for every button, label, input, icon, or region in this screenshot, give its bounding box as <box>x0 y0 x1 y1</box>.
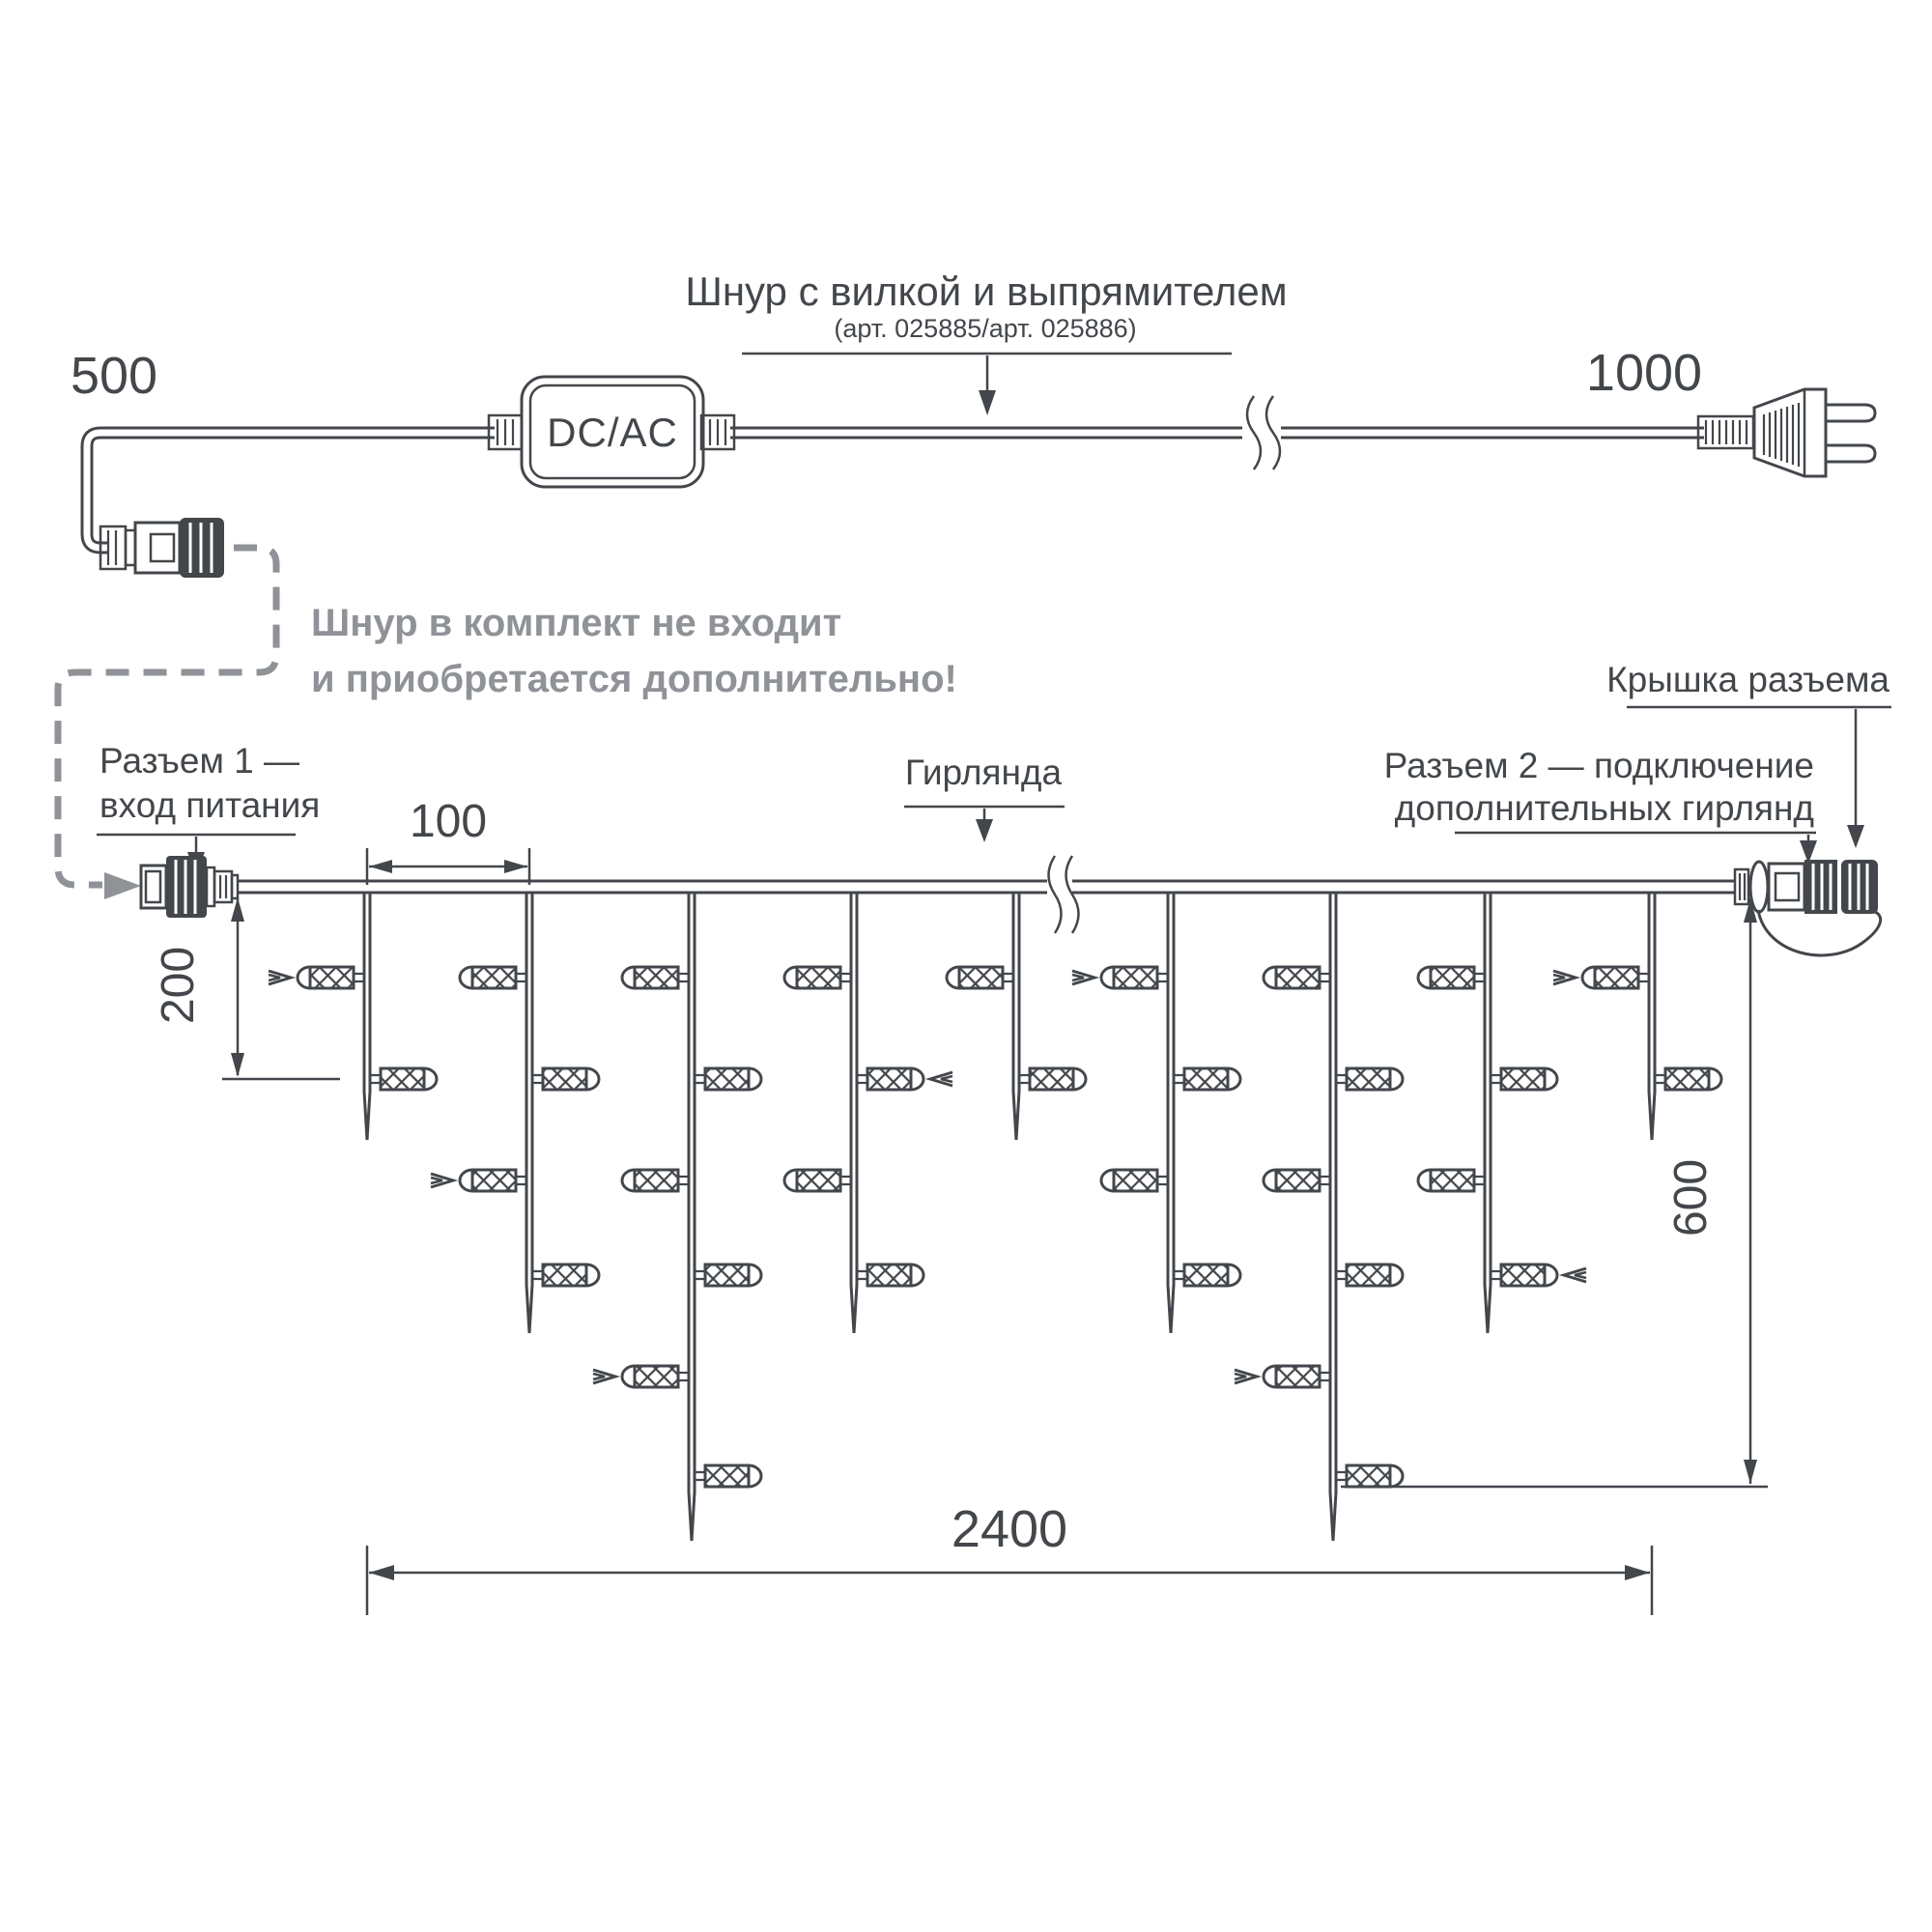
bulb-lattice <box>1501 1068 1545 1090</box>
connector-socket-detail <box>1776 873 1799 900</box>
connector-gland <box>1735 869 1748 904</box>
cord-left-run-core <box>87 433 495 548</box>
icicle-drop-4 <box>784 893 923 1333</box>
drop-wire <box>1168 893 1174 1333</box>
led-bulb <box>1174 1068 1240 1090</box>
led-bulb <box>1491 1264 1557 1286</box>
icicle-drop-9 <box>1582 893 1721 1140</box>
arrowhead <box>976 819 993 842</box>
cord-break-symbol <box>1242 396 1281 469</box>
bulb-lattice <box>867 1068 911 1090</box>
dimension-100: 100 <box>367 796 529 885</box>
bulb-lattice <box>381 1068 424 1090</box>
garland-assembly: Разъем 1 — вход питания Гирлянда Разъем … <box>97 660 1891 1615</box>
cap-label: Крышка разъема <box>1606 660 1889 699</box>
bulb-stem <box>1320 974 1330 981</box>
bulb-lattice <box>1114 967 1157 988</box>
connector2-label-line2: дополнительных гирлянд <box>1395 788 1814 828</box>
drop-wire <box>1330 893 1336 1541</box>
bulb-stem <box>1320 1177 1330 1184</box>
detail-lines <box>497 419 513 445</box>
light-direction-arrow <box>930 1072 952 1086</box>
led-bulb <box>857 1264 923 1286</box>
bulb-stem <box>678 974 689 981</box>
bulb-lattice <box>1276 967 1320 988</box>
bulb-lattice <box>1501 1264 1545 1286</box>
converter-label: DC/AC <box>547 410 678 455</box>
icicle-drop-6 <box>1101 893 1240 1333</box>
led-bulb <box>1491 1068 1557 1090</box>
bulb-lattice <box>705 1465 749 1487</box>
bulb-lattice <box>797 967 840 988</box>
bulb-lattice <box>472 967 516 988</box>
cord-title: Шнур с вилкой и выпрямителем <box>685 269 1287 314</box>
bulb-lattice <box>543 1068 586 1090</box>
connector2-callout: Разъем 2 — подключение дополнительных ги… <box>1384 746 1817 864</box>
icicle-drop-3 <box>622 893 761 1541</box>
led-bulb <box>1418 1170 1485 1191</box>
bulb-stem <box>1003 974 1013 981</box>
arrowhead <box>231 1053 244 1077</box>
dim-2400-label: 2400 <box>952 1500 1067 1558</box>
power-plug <box>1698 389 1875 476</box>
led-bulb <box>370 1068 437 1090</box>
bulb-stem <box>1157 974 1168 981</box>
dimension-2400: 2400 <box>367 1500 1652 1615</box>
drop-wire <box>851 893 857 1333</box>
led-bulb <box>1264 967 1330 988</box>
bulb-stem <box>1157 1177 1168 1184</box>
garland-callout: Гирлянда <box>904 753 1065 842</box>
bulb-lattice <box>1431 1170 1474 1191</box>
light-direction-arrow <box>1072 971 1094 984</box>
dim-600-label: 600 <box>1665 1159 1717 1236</box>
led-bulb <box>857 1068 923 1090</box>
led-bulb <box>1101 1170 1168 1191</box>
bulb-lattice <box>1276 1366 1320 1387</box>
bulb-stem <box>532 1075 543 1083</box>
icicle-drop-5 <box>947 893 1086 1140</box>
bulb-lattice <box>705 1264 749 1286</box>
led-bulb <box>1101 967 1168 988</box>
connector-socket-detail <box>151 534 174 561</box>
connector-2-extension <box>1735 860 1881 955</box>
led-bulb <box>298 967 364 988</box>
bulb-stem <box>857 1075 867 1083</box>
detail-lines <box>1764 403 1799 467</box>
connector1-label-line2: вход питания <box>99 785 320 825</box>
light-direction-arrow <box>593 1370 615 1383</box>
drop-wire <box>689 893 695 1541</box>
diagram-canvas: Шнур с вилкой и выпрямителем (арт. 02588… <box>0 0 1932 1932</box>
cord-output-connector <box>100 518 224 578</box>
bulb-stem <box>532 1271 543 1279</box>
garland-main-wire <box>238 881 1735 893</box>
connector2-label-line1: Разъем 2 — подключение <box>1384 746 1814 785</box>
bulb-lattice <box>1665 1068 1709 1090</box>
bulb-lattice <box>1276 1170 1320 1191</box>
light-direction-arrow <box>1564 1268 1586 1282</box>
bulb-lattice <box>1347 1264 1390 1286</box>
led-bulb <box>1655 1068 1721 1090</box>
led-bulb <box>1336 1068 1403 1090</box>
bulb-stem <box>1474 974 1485 981</box>
led-bulb <box>532 1068 599 1090</box>
led-bulb <box>695 1264 761 1286</box>
dim-100-label: 100 <box>410 796 487 847</box>
led-bulb <box>1174 1264 1240 1286</box>
arrowhead <box>369 1565 394 1580</box>
icicle-drop-2 <box>460 893 599 1333</box>
detail-lines <box>1740 873 1745 900</box>
led-bulb <box>1582 967 1649 988</box>
bulb-lattice <box>797 1170 840 1191</box>
bulb-stem <box>1655 1075 1665 1083</box>
bulb-lattice <box>1347 1465 1390 1487</box>
plug-prong-bottom <box>1826 445 1875 462</box>
garland-drops <box>269 893 1721 1541</box>
dimension-600: 600 <box>1341 898 1768 1487</box>
arrowhead <box>1847 825 1864 848</box>
led-bulb <box>947 967 1013 988</box>
bulb-lattice <box>472 1170 516 1191</box>
bulb-lattice <box>635 967 678 988</box>
led-bulb <box>784 967 851 988</box>
bulb-stem <box>695 1271 705 1279</box>
led-bulb <box>695 1068 761 1090</box>
led-bulb <box>1418 967 1485 988</box>
light-direction-arrow <box>1553 971 1576 984</box>
note-line-1: Шнур в комплект не входит <box>311 602 841 644</box>
wire-break-symbol <box>1047 856 1079 933</box>
led-bulb <box>1336 1465 1403 1487</box>
led-bulb <box>622 1366 689 1387</box>
bulb-stem <box>678 1373 689 1380</box>
light-direction-arrow <box>1235 1370 1257 1383</box>
bulb-stem <box>1474 1177 1485 1184</box>
garland-label: Гирлянда <box>905 753 1063 792</box>
bulb-stem <box>1320 1373 1330 1380</box>
bulb-stem <box>695 1075 705 1083</box>
cord-subtitle: (арт. 025885/арт. 025886) <box>834 314 1136 343</box>
bulb-lattice <box>1184 1264 1228 1286</box>
light-direction-arrow <box>269 971 291 984</box>
connector-gland <box>214 871 232 902</box>
connector1-callout: Разъем 1 — вход питания <box>97 741 320 875</box>
led-bulb <box>532 1264 599 1286</box>
bulb-stem <box>516 974 526 981</box>
led-bulb <box>1336 1264 1403 1286</box>
bulb-stem <box>370 1075 381 1083</box>
bulb-lattice <box>635 1366 678 1387</box>
led-bulb <box>1019 1068 1086 1090</box>
led-bulb <box>622 1170 689 1191</box>
icicle-drop-1 <box>298 893 437 1140</box>
connector-collar <box>232 875 238 898</box>
note-line-2: и приобретается дополнительно! <box>311 658 957 700</box>
bulb-stem <box>695 1472 705 1480</box>
dc-ac-converter: DC/AC <box>489 377 734 487</box>
dim-200-label: 200 <box>153 947 204 1024</box>
bulb-lattice <box>1184 1068 1228 1090</box>
bulb-stem <box>354 974 364 981</box>
dim-1000-label: 1000 <box>1586 344 1702 402</box>
connector-socket-detail <box>146 871 160 902</box>
bulb-lattice <box>867 1264 911 1286</box>
bulb-stem <box>1491 1075 1501 1083</box>
bulb-stem <box>516 1177 526 1184</box>
drop-wire <box>526 893 532 1333</box>
tether-ring <box>1750 862 1768 912</box>
led-bulb <box>695 1465 761 1487</box>
bulb-lattice <box>1431 967 1474 988</box>
bulb-lattice <box>959 967 1003 988</box>
light-direction-arrow <box>431 1174 453 1187</box>
bulb-stem <box>840 974 851 981</box>
icicle-drop-7 <box>1264 893 1403 1541</box>
led-bulb <box>1264 1366 1330 1387</box>
bulb-stem <box>1174 1075 1184 1083</box>
led-bulb <box>622 967 689 988</box>
bulb-lattice <box>310 967 354 988</box>
icicle-drop-8 <box>1418 893 1557 1333</box>
led-bulb <box>784 1170 851 1191</box>
arrowhead <box>504 860 527 873</box>
bulb-stem <box>857 1271 867 1279</box>
bulb-stem <box>1336 1472 1347 1480</box>
bulb-stem <box>1174 1271 1184 1279</box>
led-bulb <box>460 967 526 988</box>
bulb-stem <box>1336 1271 1347 1279</box>
detail-lines <box>1706 420 1747 444</box>
drop-wire <box>1485 893 1491 1333</box>
bulb-stem <box>1491 1271 1501 1279</box>
cap-tether-cord <box>1758 910 1881 955</box>
detail-lines <box>710 419 725 445</box>
arrowhead <box>369 860 392 873</box>
drop-wire <box>1013 893 1019 1140</box>
led-bulb <box>460 1170 526 1191</box>
drop-wire <box>1649 893 1655 1140</box>
dashed-path-arrowhead <box>104 872 141 899</box>
detail-lines <box>220 875 226 898</box>
bulb-lattice <box>635 1170 678 1191</box>
dim-500-label: 500 <box>71 347 157 405</box>
bulb-lattice <box>1595 967 1638 988</box>
bulb-lattice <box>705 1068 749 1090</box>
icicle-garland-technical-diagram: Шнур с вилкой и выпрямителем (арт. 02588… <box>0 0 1932 1932</box>
bulb-lattice <box>1114 1170 1157 1191</box>
arrowhead <box>1744 1460 1757 1484</box>
plug-prong-top <box>1826 405 1875 421</box>
connector-1-power-input <box>141 856 238 918</box>
cord-left-run <box>87 433 495 548</box>
led-bulb <box>1264 1170 1330 1191</box>
detail-lines <box>108 530 116 565</box>
bulb-lattice <box>1030 1068 1073 1090</box>
bulb-stem <box>1336 1075 1347 1083</box>
bulb-lattice <box>1347 1068 1390 1090</box>
bulb-lattice <box>543 1264 586 1286</box>
connector1-label-line1: Разъем 1 — <box>99 741 299 781</box>
cord-title-arrowhead <box>979 390 996 415</box>
arrowhead <box>1625 1565 1650 1580</box>
bulb-stem <box>1019 1075 1030 1083</box>
bulb-stem <box>678 1177 689 1184</box>
bulb-stem <box>840 1177 851 1184</box>
bulb-stem <box>1638 974 1649 981</box>
drop-wire <box>364 893 370 1140</box>
